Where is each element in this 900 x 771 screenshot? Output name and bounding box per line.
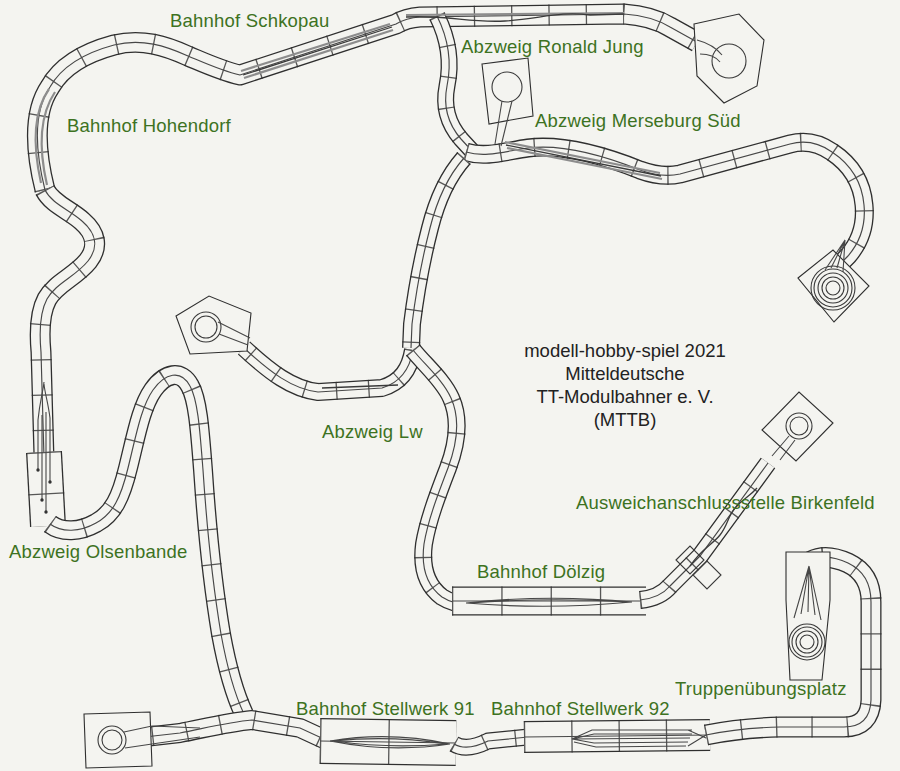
label-abzweig-lw: Abzweig Lw (322, 421, 423, 443)
event-title-line2: Mitteldeutsche (450, 362, 800, 385)
label-abzweig-ronald-jung: Abzweig Ronald Jung (461, 36, 644, 58)
track-plan-page: Bahnhof Schkopau Abzweig Ronald Jung Abz… (0, 0, 900, 771)
label-bahnhof-stellwerk-91: Bahnhof Stellwerk 91 (296, 698, 475, 720)
loop-bottom-left (84, 712, 200, 768)
label-abzweig-olsenbande: Abzweig Olsenbande (9, 541, 187, 563)
loop-abzweig-lw (176, 296, 251, 354)
loop-ronald-jung (482, 58, 533, 146)
event-title-line4: (MTTB) (450, 408, 800, 431)
event-title-line3: TT-Modulbahner e. V. (450, 385, 800, 408)
label-bahnhof-schkopau: Bahnhof Schkopau (170, 10, 330, 32)
label-truppenuebungsplatz: Truppenübungsplatz (675, 678, 847, 700)
label-abzweig-merseburg-sued: Abzweig Merseburg Süd (535, 110, 741, 132)
label-bahnhof-doelzig: Bahnhof Dölzig (477, 561, 605, 583)
event-title-line1: modell-hobby-spiel 2021 (450, 339, 800, 362)
staging-loop-truppenuebungsplatz (786, 552, 830, 680)
label-bahnhof-stellwerk-92: Bahnhof Stellwerk 92 (491, 698, 670, 720)
label-awanst-birkenfeld: Ausweichanschlussstelle Birkenfeld (576, 492, 875, 514)
label-bahnhof-hohendorf: Bahnhof Hohendorf (67, 115, 231, 137)
event-title-block: modell-hobby-spiel 2021 Mitteldeutsche T… (450, 339, 800, 431)
loop-top-right (694, 14, 764, 103)
